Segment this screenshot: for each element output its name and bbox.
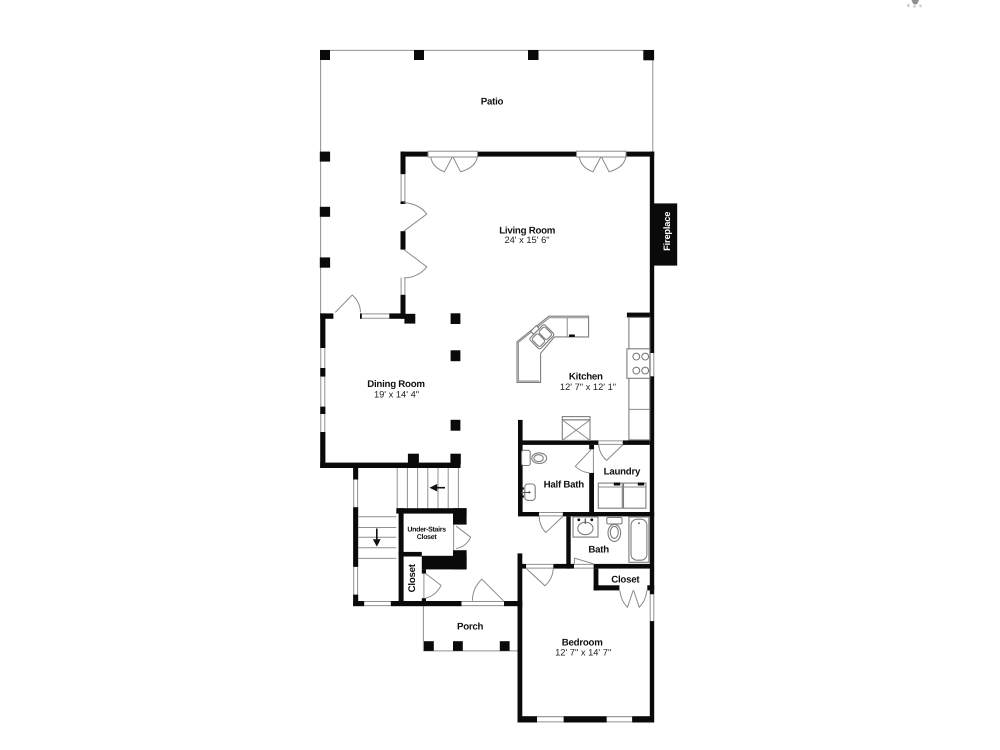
svg-text:Closet: Closet [407, 563, 418, 592]
svg-text:12' 7" x 12' 1": 12' 7" x 12' 1" [560, 382, 616, 392]
svg-text:Bath: Bath [588, 544, 609, 555]
svg-text:Laundry: Laundry [604, 467, 641, 478]
svg-text:Under-Stairs: Under-Stairs [407, 526, 446, 534]
svg-text:24' x 15' 6": 24' x 15' 6" [504, 235, 549, 245]
svg-text:12' 7" x 14' 7": 12' 7" x 14' 7" [555, 648, 611, 658]
svg-text:19' x 14' 4": 19' x 14' 4" [374, 390, 419, 400]
svg-text:Dining Room: Dining Room [367, 379, 425, 390]
svg-text:Closet: Closet [611, 574, 640, 585]
svg-text:Closet: Closet [417, 533, 438, 541]
svg-text:Fireplace: Fireplace [662, 212, 672, 251]
svg-text:Kitchen: Kitchen [569, 372, 603, 383]
svg-text:Patio: Patio [481, 97, 504, 108]
svg-text:Half Bath: Half Bath [544, 479, 585, 490]
svg-text:Porch: Porch [457, 622, 484, 633]
